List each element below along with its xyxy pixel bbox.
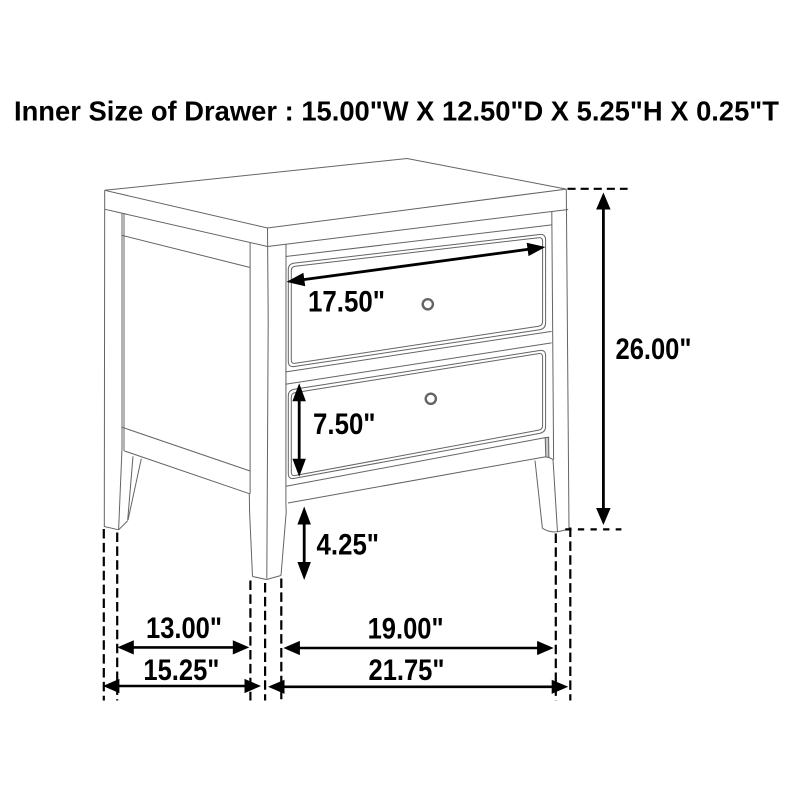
svg-text:13.00": 13.00" <box>146 612 222 645</box>
svg-text:17.50": 17.50" <box>308 285 385 318</box>
svg-text:4.25": 4.25" <box>317 528 380 561</box>
svg-text:19.00": 19.00" <box>368 612 444 645</box>
svg-text:21.75": 21.75" <box>369 654 445 687</box>
svg-text:15.25": 15.25" <box>143 654 219 687</box>
svg-text:26.00": 26.00" <box>616 333 692 366</box>
svg-text:Inner Size of Drawer : 15.00"W: Inner Size of Drawer : 15.00"W X 12.50"D… <box>14 96 779 127</box>
svg-text:7.50": 7.50" <box>313 408 376 441</box>
